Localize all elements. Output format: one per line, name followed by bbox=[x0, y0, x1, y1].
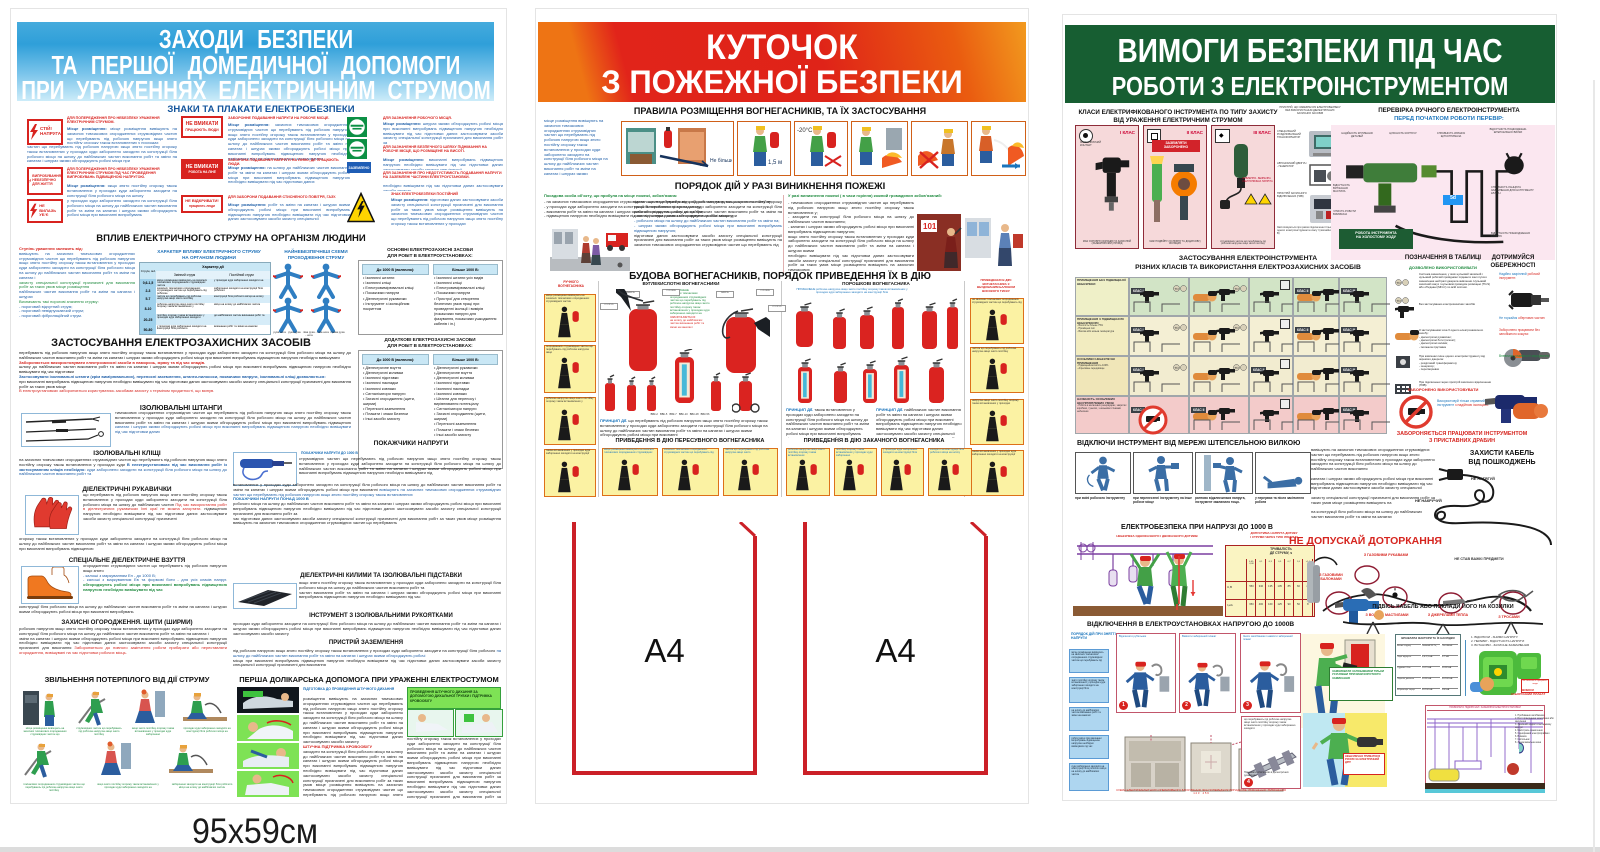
svg-text:TN: TN bbox=[1397, 281, 1401, 285]
svg-text:1,5 м: 1,5 м bbox=[768, 160, 782, 166]
svg-text:TN: TN bbox=[1175, 366, 1179, 370]
svg-text:TN: TN bbox=[1175, 326, 1179, 330]
svg-text:TN: TN bbox=[1175, 287, 1179, 291]
svg-text:Не більше 20 м: Не більше 20 м bbox=[710, 158, 732, 164]
svg-text:101: 101 bbox=[923, 222, 937, 231]
svg-text:-20°C: -20°C bbox=[797, 128, 813, 134]
